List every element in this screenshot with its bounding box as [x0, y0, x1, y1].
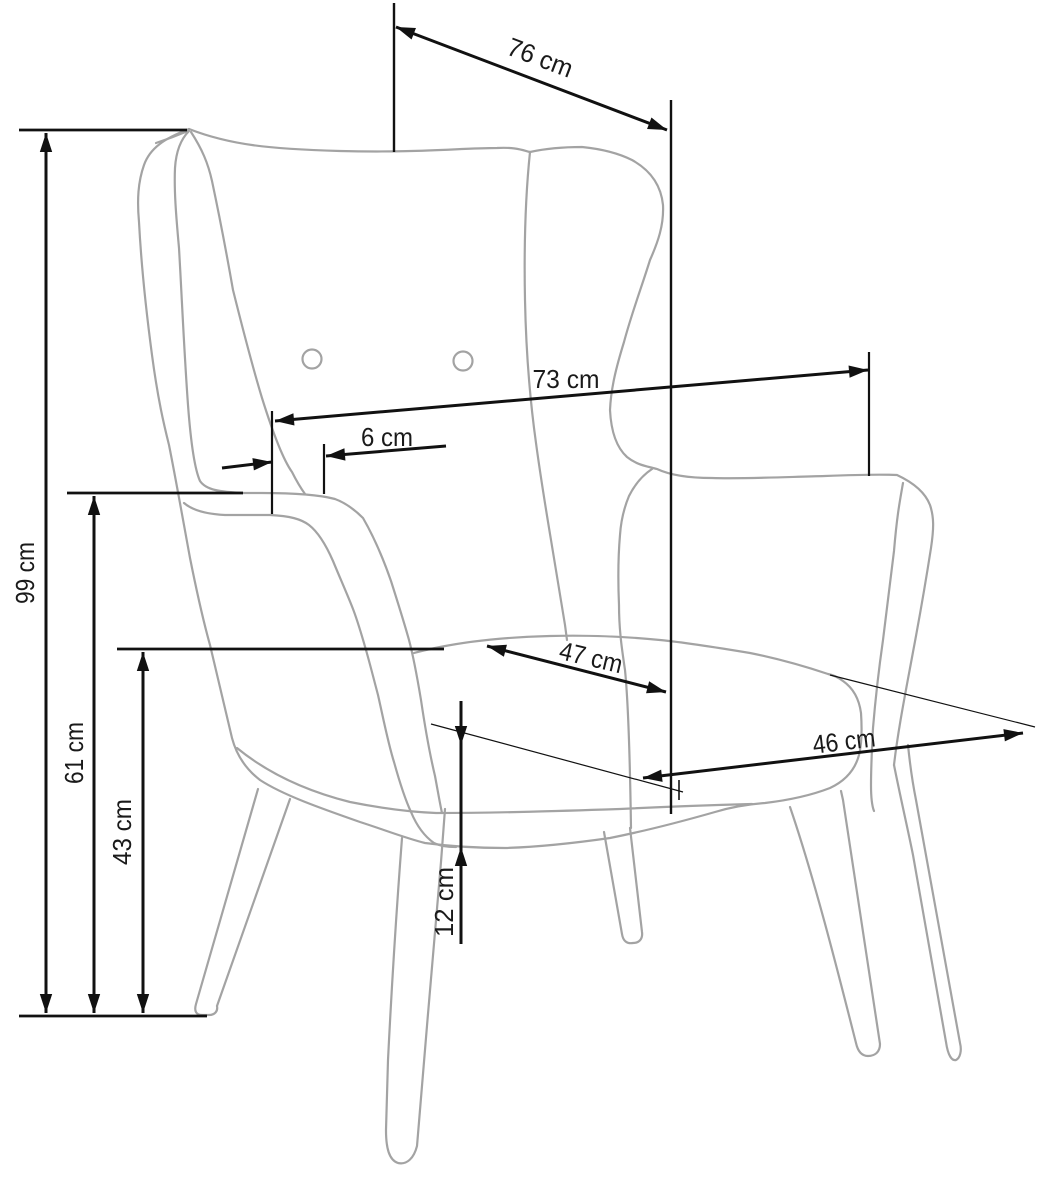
svg-text:73 cm: 73 cm — [533, 364, 600, 394]
svg-text:46 cm: 46 cm — [811, 722, 877, 759]
svg-text:43 cm: 43 cm — [107, 799, 137, 865]
svg-text:6 cm: 6 cm — [361, 422, 413, 452]
svg-text:47 cm: 47 cm — [556, 635, 625, 679]
svg-text:61 cm: 61 cm — [59, 722, 89, 784]
svg-text:99 cm: 99 cm — [10, 542, 40, 604]
svg-text:12 cm: 12 cm — [429, 867, 459, 937]
svg-text:76 cm: 76 cm — [503, 31, 577, 83]
